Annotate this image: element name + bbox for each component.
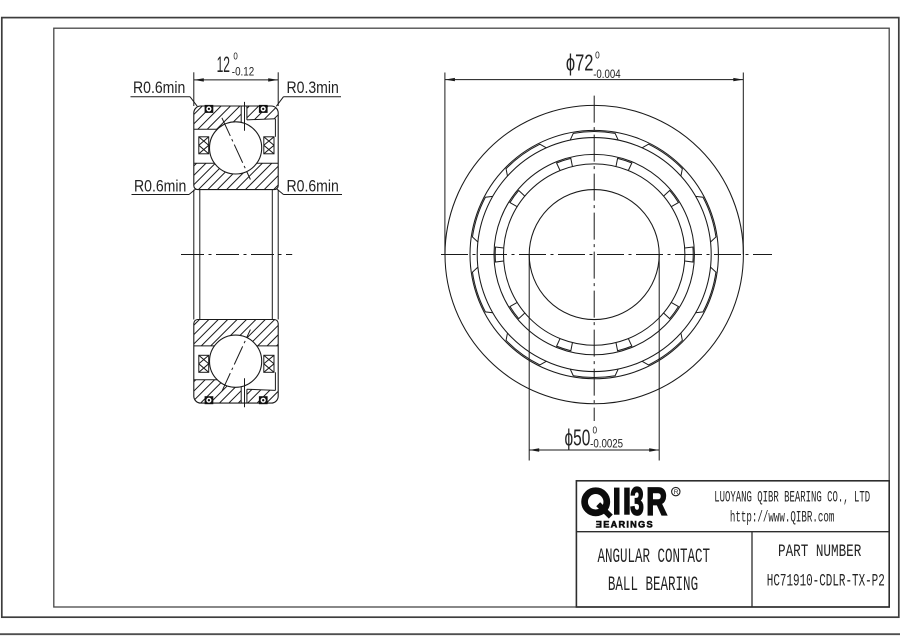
svg-text:-0.12: -0.12: [232, 66, 254, 79]
svg-text:0: 0: [233, 51, 238, 62]
svg-text:R: R: [646, 481, 667, 524]
svg-text:R0.6min: R0.6min: [134, 177, 186, 196]
svg-text:R0.3min: R0.3min: [287, 78, 339, 97]
svg-text:R0.6min: R0.6min: [133, 78, 185, 97]
svg-text:R: R: [674, 489, 679, 496]
svg-text:ϕ50: ϕ50: [565, 424, 591, 450]
svg-text:12: 12: [217, 52, 230, 77]
svg-text:-0.004: -0.004: [593, 68, 621, 81]
svg-text:ƎEARINGS: ƎEARINGS: [596, 519, 653, 529]
svg-text:ANGULAR CONTACT: ANGULAR CONTACT: [598, 546, 711, 569]
svg-text:PART NUMBER: PART NUMBER: [778, 543, 861, 562]
svg-text:http://www.QIBR.com: http://www.QIBR.com: [730, 509, 835, 527]
svg-text:0: 0: [595, 51, 600, 62]
svg-text:3: 3: [630, 481, 644, 524]
svg-text:ϕ72: ϕ72: [566, 49, 594, 75]
svg-text:0: 0: [593, 426, 598, 437]
svg-text:-0.0025: -0.0025: [590, 438, 623, 451]
svg-text:LUOYANG QIBR BEARING CO., LTD: LUOYANG QIBR BEARING CO., LTD: [714, 489, 870, 507]
svg-text:HC71910-CDLR-TX-P2: HC71910-CDLR-TX-P2: [767, 572, 885, 592]
svg-text:BALL BEARING: BALL BEARING: [608, 574, 698, 597]
svg-text:R0.6min: R0.6min: [287, 177, 339, 196]
